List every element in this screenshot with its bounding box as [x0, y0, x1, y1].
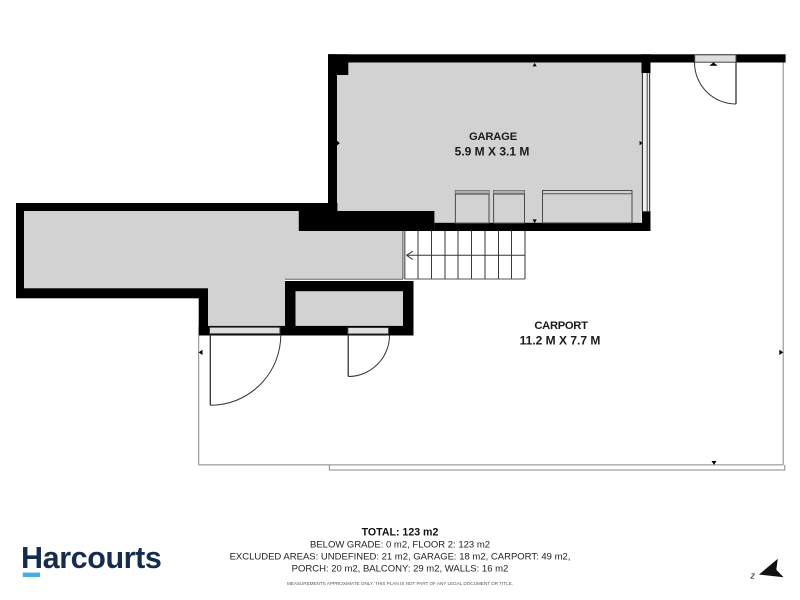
- svg-text:z: z: [750, 571, 756, 581]
- svg-text:Harcourts: Harcourts: [21, 541, 161, 575]
- svg-text:EXCLUDED AREAS: UNDEFINED: 21: EXCLUDED AREAS: UNDEFINED: 21 m2, GARAGE…: [230, 552, 571, 563]
- svg-text:MEASUREMENTS APPROXIMATE ONLY.: MEASUREMENTS APPROXIMATE ONLY. THIS PLAN…: [287, 581, 513, 586]
- svg-text:CARPORT: CARPORT: [534, 320, 588, 332]
- svg-text:TOTAL: 123 m2: TOTAL: 123 m2: [362, 527, 439, 539]
- svg-text:PORCH: 20 m2, BALCONY: 29 m2,: PORCH: 20 m2, BALCONY: 29 m2, WALLS: 16 …: [292, 563, 509, 574]
- svg-text:5.9 M X 3.1 M: 5.9 M X 3.1 M: [455, 145, 530, 159]
- svg-text:GARAGE: GARAGE: [469, 131, 518, 143]
- svg-text:BELOW GRADE: 0 m2, FLOOR 2: 12: BELOW GRADE: 0 m2, FLOOR 2: 123 m2: [310, 539, 490, 550]
- svg-text:11.2 M X 7.7 M: 11.2 M X 7.7 M: [520, 333, 601, 347]
